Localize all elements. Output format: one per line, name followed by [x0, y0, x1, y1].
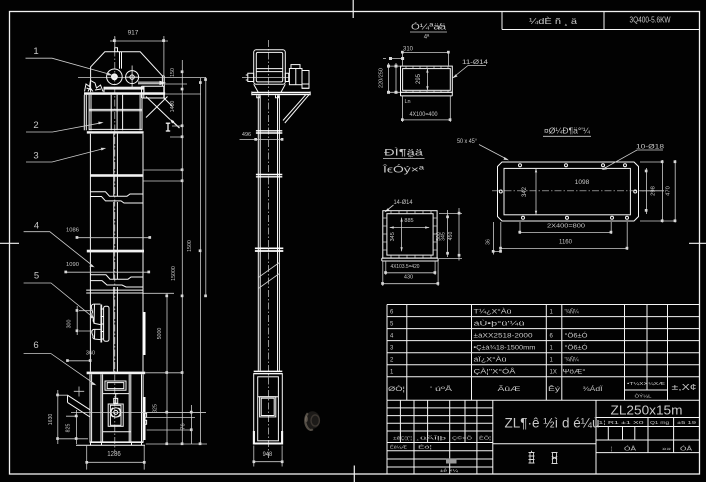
- svg-text:ÓÅ: ÓÅ: [624, 446, 636, 453]
- svg-text:'¾Ñ¼: '¾Ñ¼: [565, 309, 580, 316]
- svg-text:4X103.5=420: 4X103.5=420: [391, 264, 420, 270]
- svg-text:76: 76: [181, 423, 187, 429]
- svg-text:1400: 1400: [170, 101, 176, 113]
- svg-text:450: 450: [448, 232, 454, 241]
- svg-text:1286: 1286: [107, 451, 121, 458]
- svg-text:¼dÈ ñ ¸ ä: ¼dÈ ñ ¸ ä: [529, 16, 577, 26]
- svg-text:825: 825: [66, 424, 72, 433]
- svg-text:220/250: 220/250: [379, 68, 385, 88]
- svg-text:496: 496: [242, 132, 251, 138]
- svg-text:2: 2: [33, 120, 38, 131]
- svg-text:¦: ¦: [611, 447, 612, 453]
- svg-text:áÙ•þ°ü'¼ü: áÙ•þ°ü'¼ü: [474, 321, 525, 328]
- svg-text:ÓÅ: ÓÅ: [680, 446, 692, 453]
- svg-text:10-Ø18: 10-Ø18: [636, 144, 664, 151]
- svg-text:885: 885: [404, 218, 413, 224]
- svg-text:ØÒ¦: ØÒ¦: [388, 384, 405, 393]
- svg-text:¸üÄÎļþ: ¸üÄÎļþ: [416, 436, 447, 441]
- svg-text:342: 342: [522, 186, 528, 197]
- svg-text:Êý: Êý: [548, 384, 561, 393]
- svg-text:3Q400-5.6KW: 3Q400-5.6KW: [630, 15, 671, 25]
- svg-text:±5 19: ±5 19: [677, 420, 697, 425]
- svg-text:430: 430: [404, 274, 413, 280]
- svg-text:±êÇ¦('¦: ±êÇ¦('¦: [393, 436, 412, 441]
- svg-text:»»: »»: [662, 447, 671, 453]
- svg-text:Ó¼ªä̸ä: Ó¼ªä̸ä: [411, 22, 446, 32]
- svg-text:±ê ×¼: ±ê ×¼: [440, 468, 458, 473]
- svg-text:11-Ø14: 11-Ø14: [462, 59, 488, 66]
- svg-text:ÎϵÓý×ª: ÎϵÓý×ª: [381, 165, 425, 175]
- svg-text:917: 917: [128, 30, 139, 37]
- svg-text:1: 1: [33, 46, 38, 57]
- svg-text:ÐÌ¶ä̼ä: ÐÌ¶ä̼ä: [384, 148, 423, 158]
- svg-text:345: 345: [441, 232, 447, 241]
- svg-text:470: 470: [666, 186, 672, 196]
- svg-text:' úºÅ: ' úºÅ: [430, 384, 453, 393]
- svg-text:Ç©×Ö: Ç©×Ö: [452, 436, 473, 441]
- svg-text:325: 325: [153, 404, 159, 413]
- svg-text:°Ö6±Ó: °Ö6±Ó: [565, 345, 588, 352]
- svg-text:6: 6: [33, 340, 38, 351]
- svg-text:2X400=800: 2X400=800: [547, 224, 585, 230]
- svg-text:4: 4: [34, 221, 39, 232]
- svg-text:360: 360: [86, 351, 95, 357]
- svg-text:310: 310: [403, 46, 414, 52]
- svg-text:ZL250x15m: ZL250x15m: [611, 404, 683, 418]
- svg-text:150: 150: [170, 68, 176, 77]
- svg-text:1¦ R1 ±1 X0: 1¦ R1 ±1 X0: [599, 420, 645, 425]
- svg-text:Éè¼Æ: Éè¼Æ: [390, 444, 407, 450]
- svg-text:948: 948: [263, 451, 273, 458]
- svg-text:ÃûÆ: ÃûÆ: [498, 384, 522, 393]
- svg-text:1630: 1630: [48, 414, 54, 426]
- svg-text:±,X¢: ±,X¢: [672, 383, 697, 392]
- svg-text:ΨöÆ°: ΨöÆ°: [563, 370, 587, 376]
- svg-text:3: 3: [33, 151, 38, 162]
- svg-text:¤Ø¼Ð¶ä°'¼: ¤Ø¼Ð¶ä°'¼: [544, 126, 591, 136]
- svg-text:1160: 1160: [559, 239, 573, 245]
- svg-text:±àXX2518-2000: ±àXX2518-2000: [474, 334, 534, 340]
- svg-text:T¼¿X°Àü: T¼¿X°Àü: [474, 309, 512, 316]
- svg-text:5: 5: [34, 271, 39, 282]
- svg-text:1098: 1098: [575, 179, 590, 186]
- svg-text:4ª: 4ª: [424, 34, 430, 41]
- svg-text:ÇÀ¦"X°ÓÅ: ÇÀ¦"X°ÓÅ: [474, 369, 516, 376]
- svg-text:14-Ø14: 14-Ø14: [394, 200, 414, 206]
- svg-text:ÒÝ¼L: ÒÝ¼L: [635, 393, 652, 400]
- svg-text:1X: 1X: [550, 370, 557, 376]
- svg-text:1090: 1090: [66, 262, 79, 268]
- svg-text:4X100=400: 4X100=400: [410, 112, 439, 118]
- svg-text:298: 298: [651, 186, 657, 196]
- svg-text:50 x 45°: 50 x 45°: [457, 137, 477, 145]
- svg-text:Q1 mg: Q1 mg: [650, 420, 670, 425]
- svg-text:ÈÕ¦: ÈÕ¦: [479, 436, 491, 441]
- svg-text:1500: 1500: [187, 240, 193, 252]
- svg-text:°Ö6±Ó: °Ö6±Ó: [565, 333, 588, 340]
- svg-text:•T¼XX¼XÆ: •T¼XX¼XÆ: [627, 381, 665, 387]
- svg-text:5000: 5000: [157, 328, 163, 340]
- svg-text:¾ÁdÏ: ¾ÁdÏ: [583, 384, 603, 393]
- svg-text:295: 295: [416, 73, 422, 84]
- svg-text:Éó¦: Éó¦: [418, 444, 432, 450]
- svg-text:345: 345: [390, 232, 396, 241]
- svg-text:36: 36: [486, 239, 492, 245]
- svg-text:300: 300: [67, 320, 73, 329]
- svg-text:•Ç±à¾18-1500mm: •Ç±à¾18-1500mm: [474, 346, 536, 352]
- svg-text:Ln: Ln: [405, 99, 411, 105]
- svg-text:'¾Ñ¼: '¾Ñ¼: [565, 357, 580, 364]
- svg-text:ZL¶·ê ½ì d é¼ù: ZL¶·ê ½ì d é¼ù: [505, 415, 600, 431]
- svg-text:1086: 1086: [66, 227, 79, 233]
- svg-text:15000: 15000: [171, 266, 177, 281]
- svg-text:áÏ¿X°Àü: áÏ¿X°Àü: [474, 357, 507, 364]
